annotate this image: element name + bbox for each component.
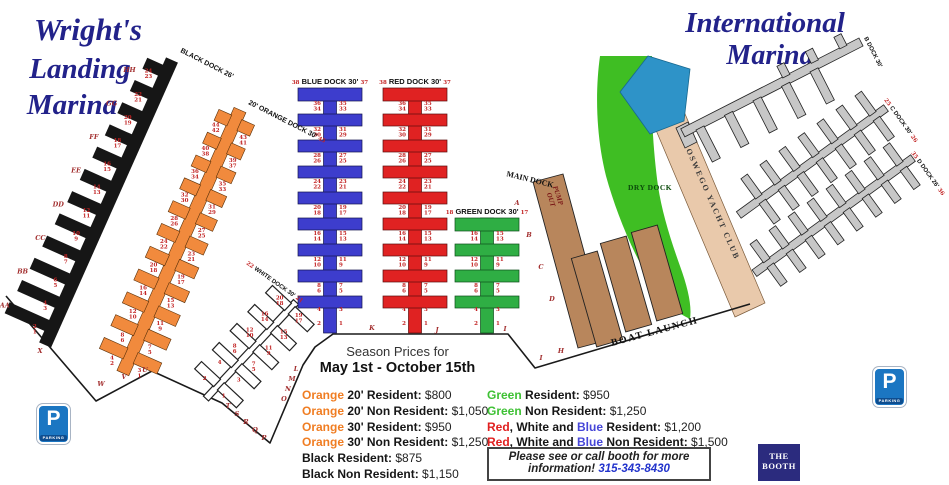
svg-text:HH: HH bbox=[122, 66, 136, 74]
svg-text:87: 87 bbox=[64, 254, 68, 266]
svg-text:4: 4 bbox=[474, 307, 478, 313]
svg-text:2826: 2826 bbox=[170, 216, 178, 228]
main-dock-label: MAIN DOCK bbox=[506, 169, 556, 190]
price-line: Orange 30' Resident: $950 bbox=[302, 420, 488, 436]
svg-text:3533: 3533 bbox=[424, 101, 432, 113]
svg-text:2018: 2018 bbox=[150, 262, 158, 274]
svg-text:R: R bbox=[242, 418, 249, 426]
svg-text:1513: 1513 bbox=[167, 298, 175, 310]
svg-text:2: 2 bbox=[474, 321, 478, 327]
svg-text:2422: 2422 bbox=[313, 179, 321, 191]
svg-text:1614: 1614 bbox=[398, 231, 406, 243]
price-line: Red, White and Blue Resident: $1,200 bbox=[487, 420, 728, 436]
title-international: International bbox=[684, 7, 845, 39]
title-landing: Landing bbox=[28, 53, 131, 85]
svg-text:2725: 2725 bbox=[339, 153, 347, 165]
svg-text:2321: 2321 bbox=[187, 251, 195, 262]
svg-text:3129: 3129 bbox=[208, 205, 216, 217]
svg-text:CC: CC bbox=[35, 234, 46, 242]
svg-text:1513: 1513 bbox=[424, 231, 432, 243]
parking-sign-right: P PARKING bbox=[873, 367, 906, 407]
svg-text:BB: BB bbox=[16, 268, 28, 276]
parking-sign-left: P PARKING bbox=[37, 404, 70, 444]
svg-text:119: 119 bbox=[156, 321, 164, 333]
d-dock-label: 35D DOCK 26'36 bbox=[909, 151, 945, 197]
svg-text:38 BLUE DOCK 30' 37: 38 BLUE DOCK 30' 37 bbox=[292, 77, 368, 86]
svg-text:C: C bbox=[538, 263, 544, 271]
green-dock: 18 GREEN DOCK 30' 1716141513121011986754… bbox=[446, 207, 529, 333]
svg-text:AA: AA bbox=[0, 301, 10, 309]
svg-text:3533: 3533 bbox=[219, 181, 227, 193]
title-wrights: Wright's bbox=[34, 12, 142, 47]
red-dock: 38 RED DOCK 30' 373634353332303129282627… bbox=[379, 77, 451, 333]
price-line: Black Resident: $875 bbox=[302, 451, 488, 467]
svg-text:2725: 2725 bbox=[424, 153, 432, 165]
svg-text:3634: 3634 bbox=[191, 169, 199, 181]
svg-text:119: 119 bbox=[339, 257, 347, 269]
title-marina-right: Marina bbox=[725, 40, 813, 71]
svg-text:3230: 3230 bbox=[181, 193, 189, 205]
svg-text:X: X bbox=[36, 347, 43, 355]
svg-text:2321: 2321 bbox=[339, 179, 347, 191]
svg-text:U: U bbox=[142, 366, 148, 374]
price-line: Green Resident: $950 bbox=[487, 388, 728, 404]
svg-text:86: 86 bbox=[233, 344, 237, 356]
svg-text:2422: 2422 bbox=[160, 239, 168, 251]
b-dock-label: B DOCK 30' bbox=[862, 36, 883, 69]
svg-text:Q: Q bbox=[252, 426, 258, 434]
svg-text:4038: 4038 bbox=[202, 146, 210, 158]
svg-text:1513: 1513 bbox=[339, 231, 347, 243]
svg-text:3129: 3129 bbox=[424, 127, 432, 139]
svg-text:21: 21 bbox=[33, 324, 37, 336]
svg-text:2018: 2018 bbox=[398, 205, 406, 217]
svg-text:2: 2 bbox=[317, 321, 321, 327]
svg-text:86: 86 bbox=[402, 283, 406, 295]
svg-text:2422: 2422 bbox=[398, 179, 406, 191]
marina-map-page: Wright's Landing Marina International Ma… bbox=[0, 0, 949, 485]
price-line: Orange 20' Non Resident: $1,050 bbox=[302, 404, 488, 420]
svg-text:31: 31 bbox=[137, 368, 141, 380]
svg-text:43: 43 bbox=[43, 301, 47, 313]
svg-text:2826: 2826 bbox=[398, 153, 406, 165]
svg-text:1413: 1413 bbox=[93, 185, 101, 197]
dry-dock-label: DRY DOCK bbox=[628, 183, 672, 192]
svg-text:1210: 1210 bbox=[398, 257, 406, 269]
svg-text:FF: FF bbox=[88, 133, 99, 141]
svg-text:1614: 1614 bbox=[261, 312, 269, 324]
svg-text:1210: 1210 bbox=[246, 328, 254, 340]
svg-text:75: 75 bbox=[339, 283, 343, 295]
svg-text:3533: 3533 bbox=[339, 101, 347, 113]
svg-text:1210: 1210 bbox=[313, 257, 321, 269]
svg-text:86: 86 bbox=[474, 283, 478, 295]
season-line1: Season Prices for bbox=[295, 344, 500, 359]
svg-text:S: S bbox=[235, 410, 240, 418]
svg-text:H: H bbox=[557, 347, 565, 355]
svg-text:1210: 1210 bbox=[470, 257, 478, 269]
svg-text:3: 3 bbox=[339, 307, 343, 313]
svg-text:2018: 2018 bbox=[313, 205, 321, 217]
blue-dock: 38 BLUE DOCK 30' 37363435333230312928262… bbox=[292, 77, 368, 333]
svg-text:2: 2 bbox=[203, 376, 207, 382]
svg-text:1211: 1211 bbox=[83, 208, 91, 220]
booth-notice: Please see or call booth for more inform… bbox=[487, 447, 711, 481]
svg-text:1: 1 bbox=[339, 321, 343, 327]
svg-text:3: 3 bbox=[237, 378, 241, 384]
svg-text:4: 4 bbox=[317, 307, 321, 313]
svg-text:38 RED DOCK 30' 37: 38 RED DOCK 30' 37 bbox=[379, 77, 451, 86]
svg-text:1817: 1817 bbox=[114, 138, 122, 150]
season-line2: May 1st - October 15th bbox=[295, 360, 500, 376]
price-line: Green Non Resident: $1,250 bbox=[487, 404, 728, 420]
svg-text:1: 1 bbox=[496, 321, 500, 327]
svg-text:2725: 2725 bbox=[198, 228, 206, 240]
svg-text:1917: 1917 bbox=[177, 275, 185, 287]
svg-text:B: B bbox=[525, 231, 532, 239]
svg-text:4: 4 bbox=[218, 360, 222, 366]
price-line: Orange 30' Non Resident: $1,250 bbox=[302, 435, 488, 451]
season-prices-header: Season Prices for May 1st - October 15th bbox=[295, 344, 500, 376]
svg-text:2: 2 bbox=[402, 321, 406, 327]
svg-text:2019: 2019 bbox=[124, 115, 132, 127]
parking-p-icon: P bbox=[39, 406, 68, 432]
svg-text:2423: 2423 bbox=[145, 69, 153, 81]
price-list-left: Orange 20' Resident: $800Orange 20' Non … bbox=[302, 388, 488, 483]
price-line: Black Non Resident: $1,150 bbox=[302, 467, 488, 483]
svg-text:3937: 3937 bbox=[229, 158, 237, 170]
svg-text:M: M bbox=[287, 375, 296, 383]
notice-line1: Please see or call booth for more bbox=[489, 451, 709, 463]
svg-text:1917: 1917 bbox=[424, 205, 432, 217]
parking-p-icon: P bbox=[875, 369, 904, 395]
svg-text:D: D bbox=[548, 295, 555, 303]
svg-text:A: A bbox=[513, 199, 519, 207]
svg-text:3129: 3129 bbox=[339, 127, 347, 139]
notice-line2: information! 315-343-8430 bbox=[489, 463, 709, 475]
svg-text:I: I bbox=[502, 325, 507, 333]
booth-phone-number: 315-343-8430 bbox=[598, 463, 670, 475]
svg-text:I: I bbox=[538, 354, 543, 362]
svg-text:75: 75 bbox=[252, 361, 256, 373]
svg-text:1614: 1614 bbox=[470, 231, 478, 243]
svg-text:O: O bbox=[281, 395, 287, 403]
svg-text:4442: 4442 bbox=[212, 123, 220, 134]
svg-text:J: J bbox=[433, 326, 439, 334]
svg-text:1614: 1614 bbox=[139, 286, 147, 298]
svg-text:1614: 1614 bbox=[313, 231, 321, 243]
svg-text:1210: 1210 bbox=[129, 309, 137, 321]
svg-text:W: W bbox=[97, 380, 105, 388]
title-marina-left: Marina bbox=[26, 89, 117, 121]
black-dock-label: BLACK DOCK 26' bbox=[179, 48, 235, 81]
svg-text:75: 75 bbox=[148, 345, 152, 357]
svg-text:DD: DD bbox=[52, 200, 65, 208]
svg-text:86: 86 bbox=[317, 283, 321, 295]
svg-text:119: 119 bbox=[424, 257, 432, 269]
svg-text:3: 3 bbox=[496, 307, 500, 313]
svg-text:2321: 2321 bbox=[424, 179, 432, 191]
svg-text:4341: 4341 bbox=[239, 135, 247, 147]
svg-text:2221: 2221 bbox=[134, 92, 142, 104]
svg-text:1: 1 bbox=[222, 394, 226, 400]
svg-text:42: 42 bbox=[110, 356, 114, 368]
svg-text:1917: 1917 bbox=[295, 313, 303, 325]
svg-text:75: 75 bbox=[424, 283, 428, 295]
svg-text:2826: 2826 bbox=[313, 153, 321, 165]
price-line: Orange 20' Resident: $800 bbox=[302, 388, 488, 404]
svg-text:2018: 2018 bbox=[276, 295, 284, 307]
svg-text:3634: 3634 bbox=[398, 101, 406, 113]
svg-text:3230: 3230 bbox=[398, 127, 406, 139]
svg-text:1513: 1513 bbox=[280, 329, 288, 341]
booth-sign: THE BOOTH bbox=[758, 444, 800, 481]
svg-text:EE: EE bbox=[70, 167, 82, 175]
svg-text:N: N bbox=[284, 385, 292, 393]
svg-text:65: 65 bbox=[54, 277, 58, 289]
svg-text:GG: GG bbox=[106, 99, 118, 107]
svg-text:3634: 3634 bbox=[313, 101, 321, 113]
svg-text:75: 75 bbox=[496, 283, 500, 295]
svg-text:1917: 1917 bbox=[339, 205, 347, 217]
svg-text:1: 1 bbox=[424, 321, 428, 327]
svg-text:4: 4 bbox=[402, 307, 406, 313]
svg-text:1513: 1513 bbox=[496, 231, 504, 243]
svg-text:K: K bbox=[368, 324, 375, 332]
svg-text:119: 119 bbox=[496, 257, 504, 269]
svg-text:86: 86 bbox=[120, 332, 124, 344]
svg-text:109: 109 bbox=[72, 231, 80, 243]
svg-text:1615: 1615 bbox=[103, 161, 111, 173]
svg-text:18 GREEN DOCK 30' 17: 18 GREEN DOCK 30' 17 bbox=[446, 207, 529, 216]
svg-text:3: 3 bbox=[424, 307, 428, 313]
price-list-right: Green Resident: $950Green Non Resident: … bbox=[487, 388, 728, 451]
